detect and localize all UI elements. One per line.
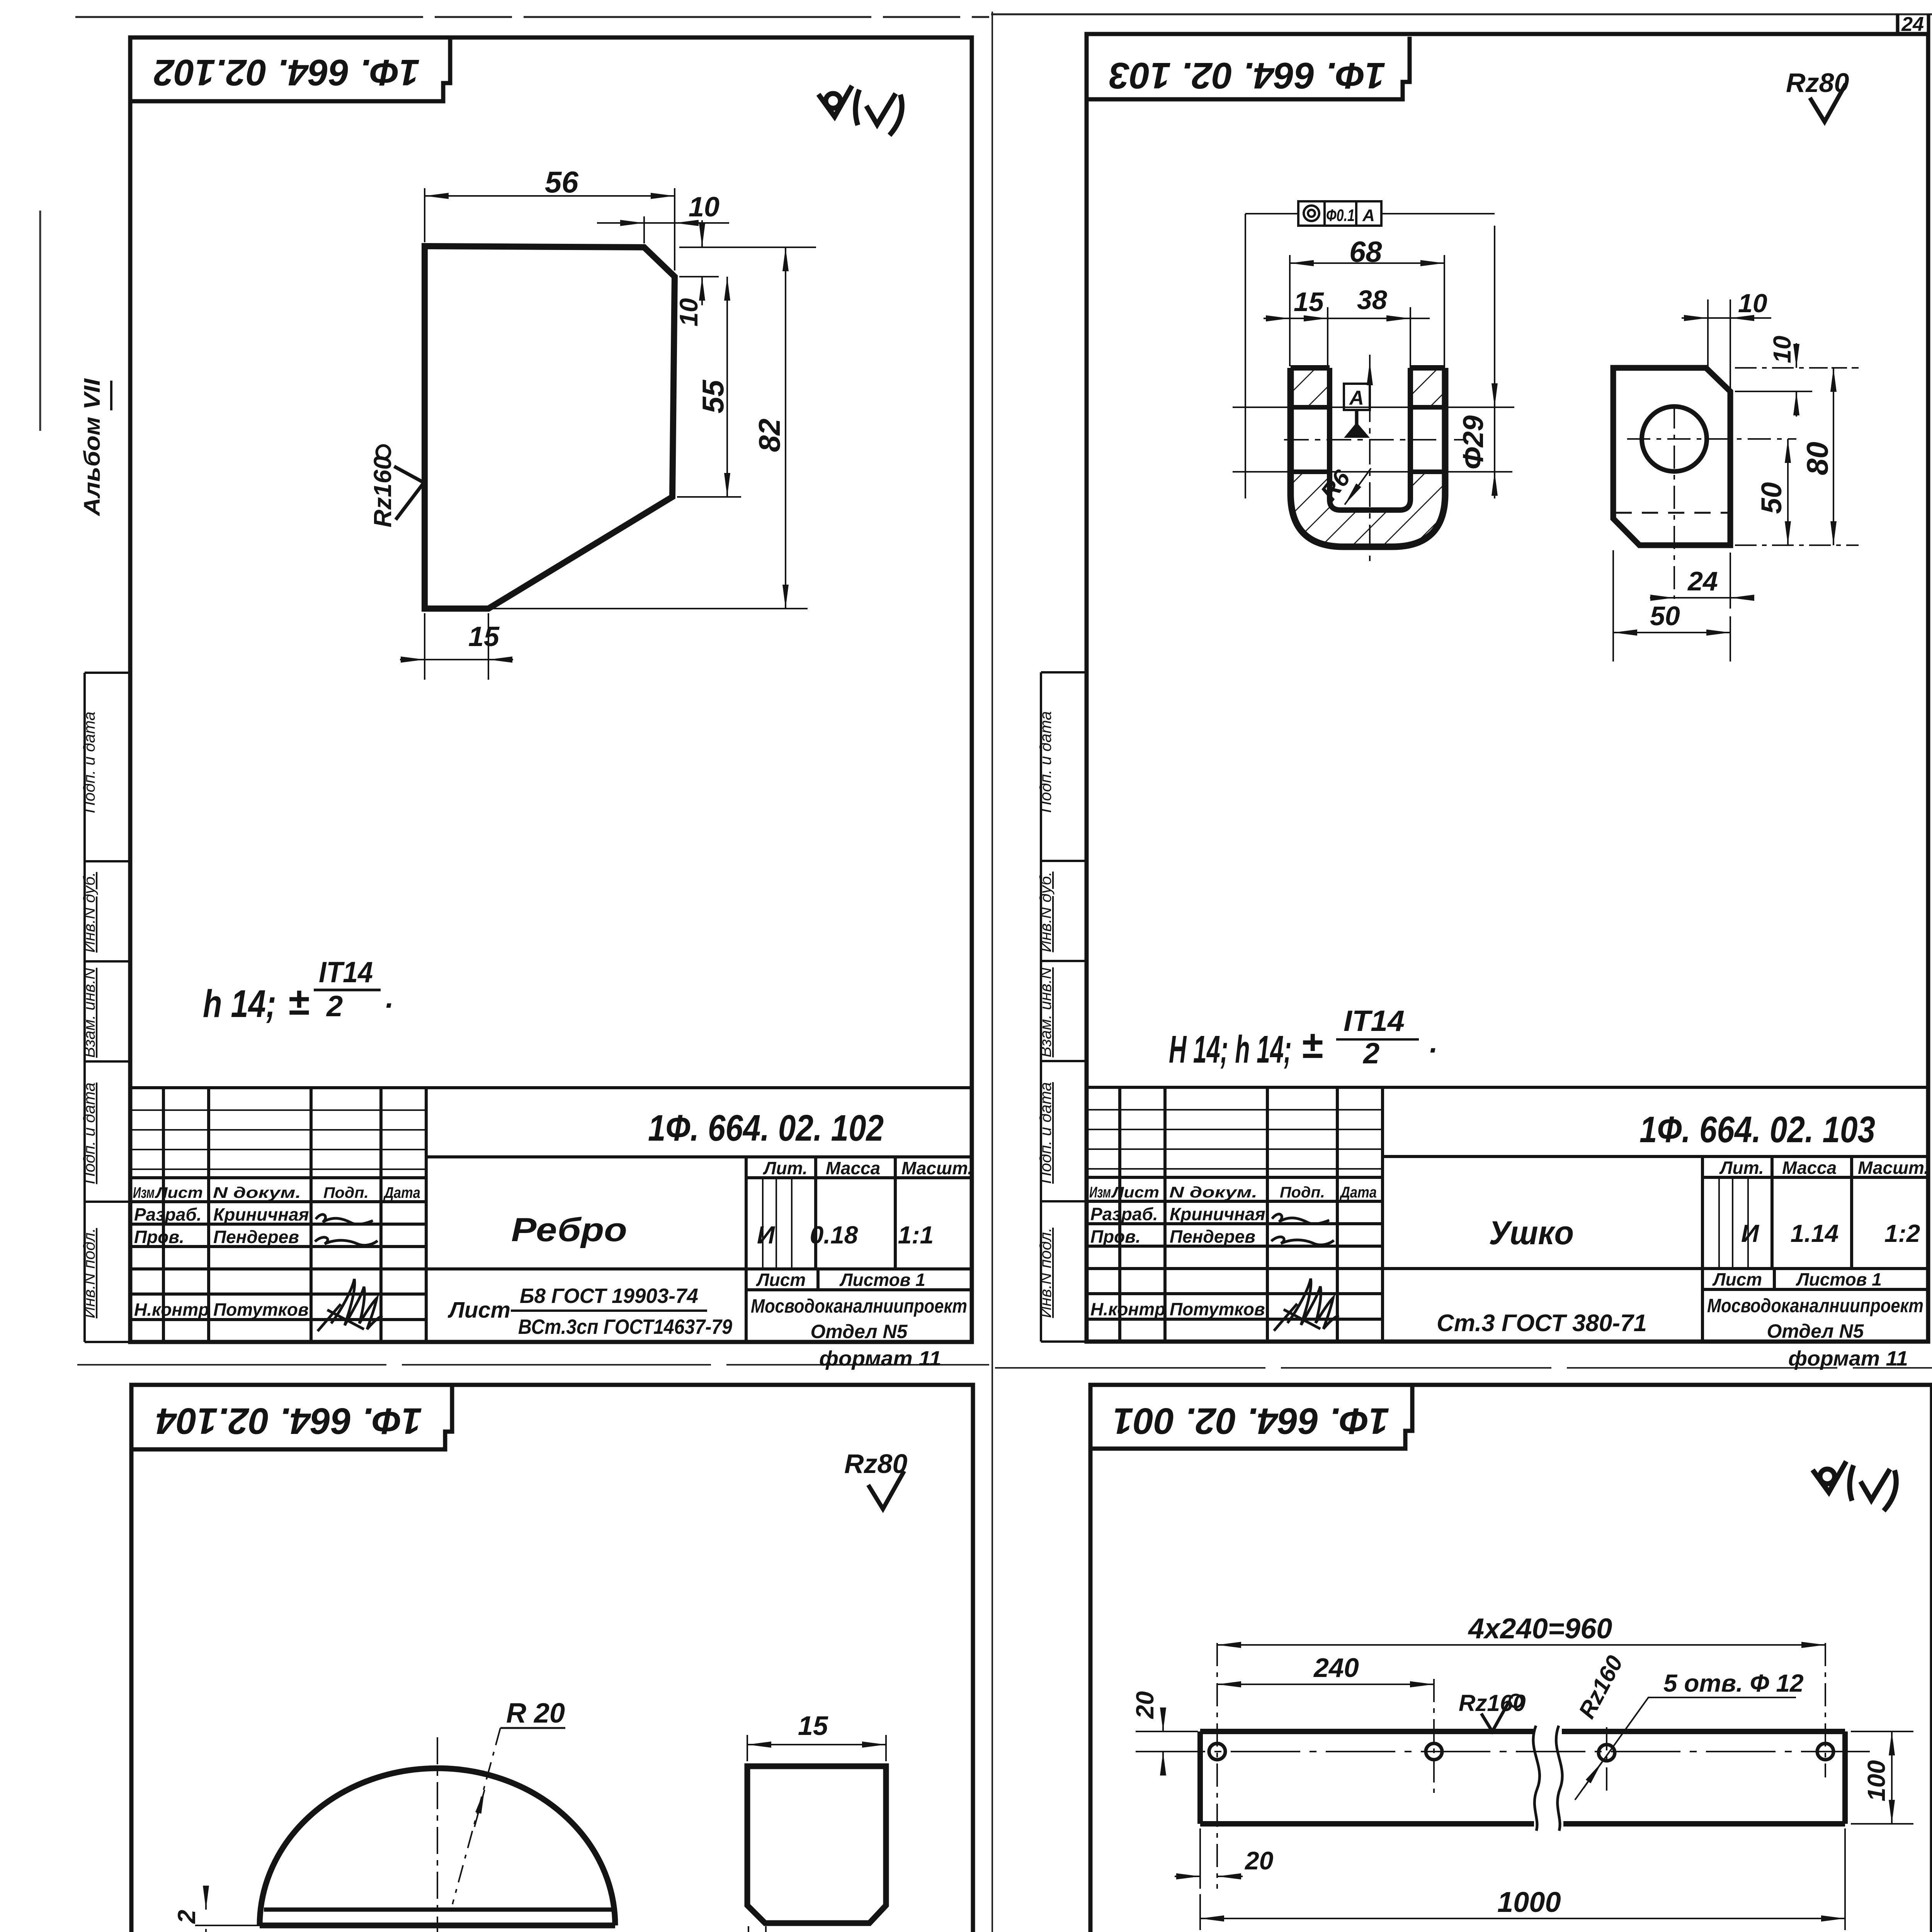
svg-text:Альбом VII: Альбом VII	[80, 378, 105, 517]
svg-text:100: 100	[1862, 1760, 1890, 1801]
svg-text:82: 82	[752, 418, 786, 452]
svg-text:Ф0.1: Ф0.1	[1326, 206, 1355, 225]
svg-text:ВСт.3сп ГОСТ14637-79: ВСт.3сп ГОСТ14637-79	[518, 1315, 732, 1338]
svg-text:Ушко: Ушко	[1489, 1214, 1574, 1252]
svg-text:68: 68	[1349, 236, 1382, 269]
svg-text:IT14: IT14	[1344, 1005, 1405, 1037]
svg-text:1:1: 1:1	[898, 1221, 934, 1249]
svg-text:1Ф. 664. 02. 102: 1Ф. 664. 02. 102	[648, 1107, 884, 1149]
svg-text:1000: 1000	[1497, 1886, 1561, 1918]
svg-text:4x240=960: 4x240=960	[1468, 1612, 1612, 1645]
svg-text:И: И	[757, 1221, 776, 1249]
svg-text:10: 10	[674, 298, 703, 327]
svg-text:И: И	[1741, 1219, 1760, 1247]
svg-text:А: А	[1362, 206, 1375, 225]
svg-text:Лист: Лист	[447, 1298, 510, 1323]
svg-text:20: 20	[1244, 1846, 1274, 1875]
svg-text:формат 11: формат 11	[1788, 1347, 1908, 1370]
svg-text:Ст.3 ГОСТ 380-71: Ст.3 ГОСТ 380-71	[1437, 1310, 1647, 1337]
svg-text:15: 15	[1294, 287, 1324, 317]
svg-text:.: .	[386, 981, 394, 1014]
svg-text:R 20: R 20	[506, 1698, 565, 1729]
svg-text:А: А	[1349, 387, 1364, 409]
svg-text:10: 10	[1738, 289, 1767, 318]
svg-text:10: 10	[1768, 336, 1796, 363]
svg-text:5 отв. Ф 12: 5 отв. Ф 12	[1663, 1669, 1804, 1697]
svg-text:±: ±	[1301, 1023, 1323, 1066]
svg-text:Ф29: Ф29	[1457, 415, 1489, 469]
svg-text:IT14: IT14	[319, 956, 373, 989]
svg-text:±: ±	[288, 980, 309, 1023]
svg-text:Б8 ГОСТ 19903-74: Б8 ГОСТ 19903-74	[520, 1284, 698, 1308]
svg-text:1Ф. 664. 02.102: 1Ф. 664. 02.102	[154, 52, 420, 93]
svg-text:h 14;: h 14;	[203, 982, 276, 1026]
svg-text:.: .	[1430, 1026, 1438, 1059]
svg-text:15: 15	[798, 1711, 828, 1741]
svg-text:50: 50	[1755, 482, 1787, 514]
svg-text:2: 2	[173, 1910, 201, 1924]
svg-text:55: 55	[696, 379, 730, 413]
svg-text:1:2: 1:2	[1884, 1219, 1920, 1247]
svg-text:Н 14; h 14;: Н 14; h 14;	[1169, 1028, 1292, 1071]
svg-text:Rz80: Rz80	[844, 1449, 907, 1479]
svg-text:формат 11: формат 11	[819, 1347, 941, 1370]
svg-text:1Ф. 664. 02. 001: 1Ф. 664. 02. 001	[1113, 1400, 1389, 1442]
svg-text:2: 2	[1362, 1037, 1379, 1070]
svg-text:Rz160: Rz160	[369, 456, 396, 527]
svg-text:56: 56	[545, 165, 578, 199]
svg-text:2: 2	[326, 990, 343, 1023]
svg-text:1.14: 1.14	[1791, 1219, 1839, 1247]
svg-text:38: 38	[1357, 285, 1387, 315]
svg-text:1Ф. 664. 02. 103: 1Ф. 664. 02. 103	[1639, 1109, 1875, 1150]
svg-text:50: 50	[1650, 601, 1680, 631]
svg-text:240: 240	[1313, 1653, 1359, 1683]
svg-text:80: 80	[1800, 442, 1834, 475]
svg-text:Ребро: Ребро	[511, 1211, 627, 1248]
svg-text:1Ф. 664. 02.104: 1Ф. 664. 02.104	[156, 1400, 422, 1442]
svg-text:0.18: 0.18	[810, 1221, 858, 1249]
svg-text:24: 24	[1687, 566, 1718, 596]
svg-text:1Ф. 664. 02. 103: 1Ф. 664. 02. 103	[1109, 55, 1386, 96]
svg-text:10: 10	[689, 192, 719, 223]
svg-text:20: 20	[1131, 1691, 1159, 1719]
svg-text:15: 15	[468, 621, 500, 652]
